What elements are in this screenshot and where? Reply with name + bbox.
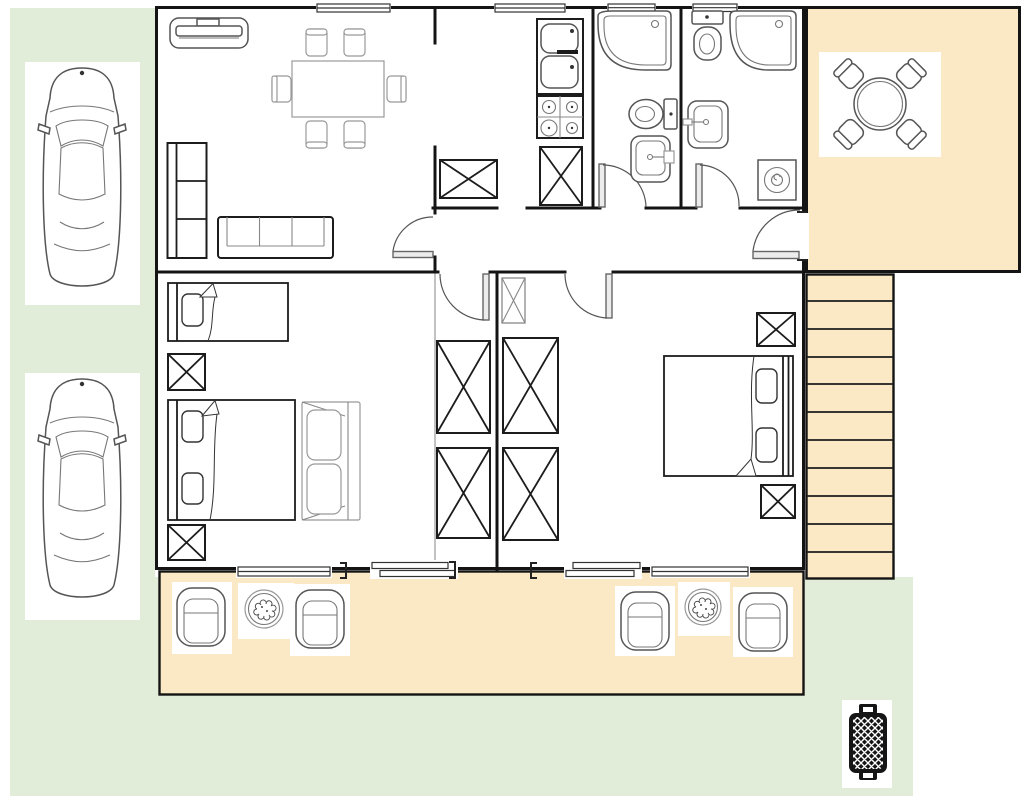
dining-chair	[344, 29, 365, 56]
floor-plan-scene	[0, 0, 1024, 807]
cabinet-crossed-box	[168, 525, 205, 560]
round-patio-table	[854, 78, 906, 130]
outdoor-armchair	[739, 593, 787, 651]
washbasin	[683, 101, 728, 148]
sliding-door	[370, 560, 458, 579]
dining-chair	[306, 29, 327, 56]
outdoor-armchair	[296, 590, 344, 648]
wardrobe-crossed-box	[503, 338, 558, 433]
single-bed	[168, 283, 288, 341]
dining-chair	[272, 76, 291, 102]
dining-chair	[306, 121, 327, 148]
tv-cabinet	[170, 18, 248, 48]
window	[316, 3, 391, 13]
kitchen-double-sink	[537, 19, 583, 94]
car-top-view	[38, 379, 126, 597]
cabinet-crossed-box	[502, 278, 525, 323]
staircase	[807, 275, 894, 579]
dining-chair	[344, 121, 365, 148]
wardrobe-crossed-box	[503, 448, 558, 540]
toilet	[629, 99, 677, 129]
double-bed	[664, 356, 793, 476]
cabinet-crossed-box	[757, 313, 795, 346]
window	[650, 565, 750, 578]
wardrobe-crossed-box	[437, 448, 490, 538]
dining-table	[292, 61, 384, 117]
potted-plant	[685, 589, 721, 625]
potted-plant	[245, 590, 283, 628]
car-top-view	[38, 68, 126, 286]
sofa-3-seat	[218, 217, 333, 258]
washing-machine	[758, 160, 796, 200]
window	[236, 563, 346, 578]
cabinet-crossed-box	[540, 147, 582, 205]
washbasin	[631, 136, 674, 182]
floor-plan-drawing	[0, 0, 1024, 807]
loveseat-sofa	[302, 402, 360, 520]
wardrobe-crossed-box	[437, 341, 490, 433]
window	[494, 3, 566, 13]
cabinet-crossed-box	[761, 485, 795, 518]
outdoor-armchair	[177, 588, 225, 646]
dining-chair	[387, 76, 406, 102]
double-bed	[168, 400, 295, 520]
gas-stove	[537, 96, 583, 138]
cabinet-crossed-box	[440, 160, 497, 198]
shelf-unit	[168, 143, 207, 258]
cabinet-crossed-box	[168, 354, 205, 390]
bbq-grill	[849, 704, 887, 780]
outdoor-armchair	[621, 592, 669, 650]
toilet	[692, 11, 723, 60]
